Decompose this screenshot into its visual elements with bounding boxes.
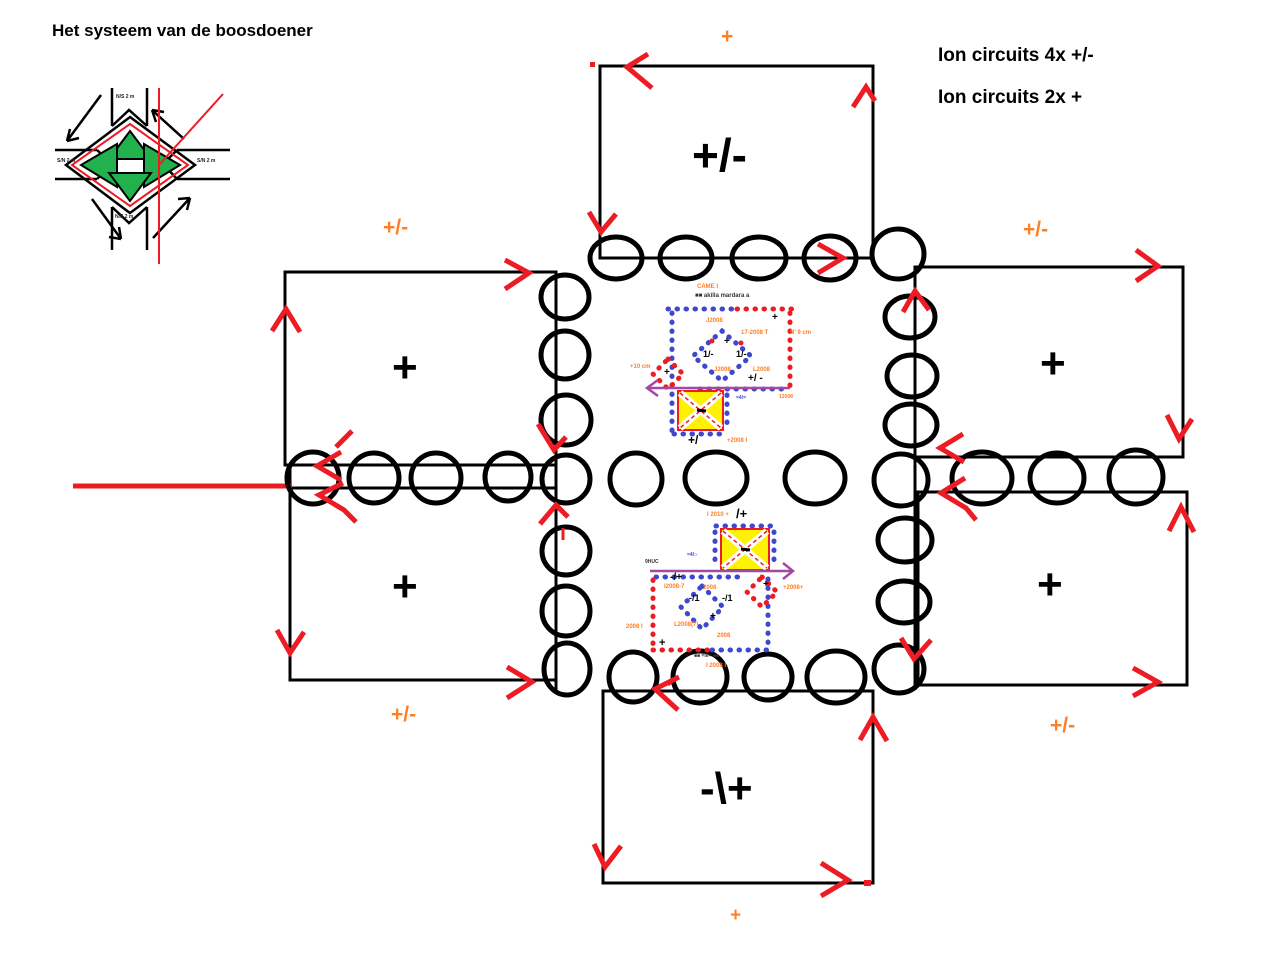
- circuit-upper-label: +2008 I: [727, 438, 747, 444]
- circuit-lower-label: I 2010 +: [707, 512, 729, 518]
- cell-upper-left-rect: [285, 272, 556, 465]
- road-label-left: S/N 2 m: [57, 159, 75, 164]
- red-dot: [590, 62, 595, 67]
- node-circle-large: [872, 229, 924, 279]
- flow-label-bottom: +: [730, 906, 741, 925]
- circuit-lower-label: -/1: [722, 594, 733, 603]
- red-arrow: [1169, 507, 1194, 532]
- circuit-upper-label: 1/-: [703, 350, 714, 359]
- circuit-upper-label: 17-2008 T: [741, 330, 768, 336]
- circuit-lower-label: +: [659, 638, 665, 649]
- red-arrow: [821, 863, 848, 896]
- node-circle: [807, 651, 865, 703]
- node-circle: [411, 453, 461, 503]
- red-arrow: [594, 844, 621, 867]
- road-label-right: S/N 2 m: [197, 159, 215, 164]
- cell-lower-left-rect: [290, 488, 556, 680]
- circuit-lower-label: 2008 I: [626, 624, 643, 630]
- cell-label-top: +/-: [692, 132, 747, 178]
- node-circle: [1030, 453, 1084, 503]
- circuit-lower-label: 2008: [717, 633, 730, 639]
- node-circle: [878, 581, 930, 623]
- node-circle: [541, 275, 589, 319]
- circuit-upper-label: +/ -: [748, 374, 763, 384]
- dotted-diamond: [747, 577, 777, 607]
- red-arrow: [1167, 415, 1192, 439]
- flow-label-upper-right: +/-: [1023, 219, 1048, 240]
- circuit-upper-label: +/: [688, 434, 698, 446]
- red-arrow: [540, 505, 568, 524]
- node-circle: [610, 453, 662, 505]
- flow-label-lower-left: +/-: [391, 704, 416, 725]
- circuit-lower-label: +2008+: [783, 585, 803, 591]
- circuit-upper-label: N' 9 cm: [790, 330, 811, 336]
- red-arrow: [507, 667, 532, 698]
- red-arrow: [589, 212, 616, 232]
- circuit-lower-label: +: [763, 580, 769, 590]
- cell-label-upper-left: +: [392, 346, 418, 390]
- node-circle-large: [542, 455, 590, 503]
- legend-line-2: Ion circuits 2x +: [938, 88, 1082, 107]
- cell-label-lower-left: +: [392, 565, 418, 609]
- circuit-upper-label: 1/-: [736, 350, 747, 359]
- center-dash: [741, 549, 750, 550]
- node-circle: [349, 453, 399, 503]
- circuit-lower-label: +: [710, 612, 716, 622]
- circuit-lower-label: I2008-7: [664, 584, 684, 590]
- intersection-diagram: [55, 88, 230, 264]
- diagram-canvas-svg: [0, 0, 1278, 968]
- node-circle: [685, 452, 747, 504]
- red-line-diagonal: [158, 94, 223, 166]
- circuit-lower-label: -/+: [670, 573, 682, 583]
- cell-label-upper-right: +: [1040, 342, 1066, 386]
- node-circle: [542, 527, 590, 575]
- flow-label-upper-left: +/-: [383, 217, 408, 238]
- circuit-lower-label: =4/:-: [687, 553, 697, 558]
- circuit-upper-label: J2008: [706, 318, 723, 324]
- circuit-lower-label: 9HUC: [645, 560, 659, 565]
- circuit-lower-label: -/1: [689, 594, 700, 603]
- circuit-upper-label: +: [664, 368, 670, 378]
- red-dot: [864, 880, 871, 886]
- node-circle: [887, 355, 937, 397]
- node-circle: [541, 331, 589, 379]
- node-circle: [544, 643, 590, 695]
- black-arrow-top-left: [67, 95, 101, 141]
- node-circle: [744, 654, 792, 700]
- circuit-lower-label: L2008(7): [674, 622, 698, 628]
- red-arrow: [336, 431, 352, 447]
- road-label-bottom: N/S 2 m: [115, 215, 133, 220]
- node-circle: [542, 586, 590, 636]
- node-circle: [609, 652, 657, 702]
- center-dash: [697, 410, 706, 411]
- node-circle: [878, 518, 932, 562]
- page-title: Het systeem van de boosdoener: [52, 22, 313, 39]
- circuit-upper-label: J2008: [714, 367, 731, 373]
- circuit-upper-label: =4/=: [736, 396, 746, 401]
- node-circle: [485, 453, 531, 501]
- circuit-lower-label: I 2008 I: [706, 663, 726, 669]
- black-arrow-up-left: [152, 110, 184, 139]
- red-arrow: [941, 478, 976, 520]
- circuit-upper-label: 12008: [779, 395, 793, 400]
- paint-canvas: Het systeem van de boosdoener Ion circui…: [0, 0, 1278, 968]
- circuit-upper-label: +: [724, 337, 730, 347]
- circuit-upper-label: CAME I: [697, 284, 718, 290]
- road-label-top: N/S 2 m: [116, 95, 134, 100]
- circuit-lower-label: 2008: [703, 585, 716, 591]
- red-arrow: [505, 260, 529, 289]
- red-arrow: [1133, 668, 1158, 696]
- circuit-upper-label: ■■ akilla mardara a: [695, 293, 749, 299]
- node-circle: [785, 452, 845, 504]
- flow-label-lower-right: +/-: [1050, 715, 1075, 736]
- circuit-lower-label: /+: [736, 507, 747, 520]
- grid-rectangles: [73, 66, 1187, 883]
- flow-label-top: +: [721, 26, 733, 47]
- legend-line-1: Ion circuits 4x +/-: [938, 46, 1094, 65]
- cell-label-lower-right: +: [1037, 563, 1063, 607]
- circuit-upper-label: +: [772, 313, 778, 323]
- circuit-lower-label: ■■ =III= ■■: [694, 654, 719, 659]
- circuit-upper-label: +10 cm: [630, 364, 651, 370]
- red-dot: [710, 339, 715, 344]
- cell-label-bottom: -\+: [700, 767, 753, 811]
- node-circle-large: [874, 454, 928, 506]
- node-circle: [885, 404, 937, 446]
- red-dot: [739, 341, 744, 346]
- red-arrow: [627, 54, 652, 88]
